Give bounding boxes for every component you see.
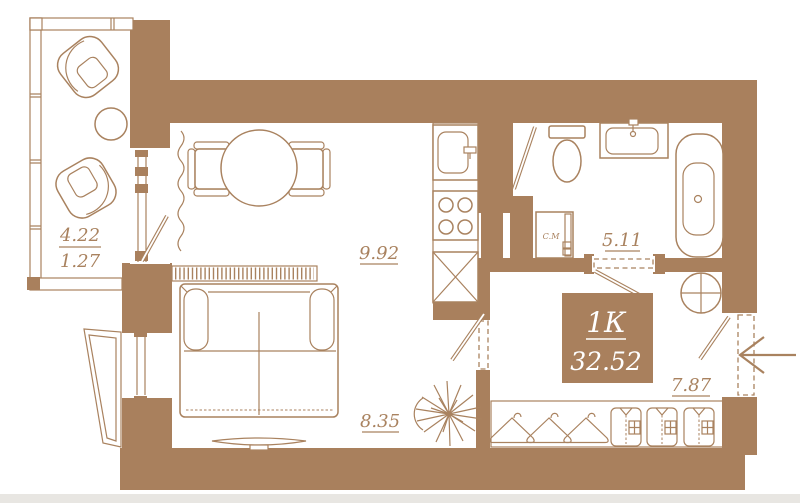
- wall-balcony-divider: [130, 20, 170, 150]
- kitchen-living-area-label: 9.92: [359, 243, 399, 264]
- balcony-rail-bottom: [30, 278, 122, 290]
- wall-hall-band-right: [655, 258, 722, 272]
- stove: [433, 191, 478, 240]
- armchair-bottom: [50, 152, 121, 223]
- bed-cushion-left: [184, 289, 208, 350]
- wardrobe: [490, 401, 727, 447]
- bed-cushion-right: [310, 289, 334, 350]
- bed: [180, 284, 338, 417]
- balcony-rail-top: [30, 18, 133, 30]
- washing-machine: С.М: [536, 212, 573, 258]
- floor-plan-drawing: 4.22 1.27: [0, 0, 800, 503]
- curtain-squiggle: [178, 131, 184, 251]
- balcony-rail-left: [30, 18, 41, 288]
- living-hall-door-opening: [476, 320, 490, 370]
- bathroom-area-label: 5.11: [602, 230, 642, 251]
- shirt-icon: [684, 408, 714, 446]
- armchair-top: [52, 31, 125, 104]
- balcony-rail-corner: [30, 18, 42, 30]
- wall-right-upper: [722, 80, 757, 313]
- sleeping-zone-area-label: 8.35: [360, 411, 400, 432]
- plant: [414, 381, 482, 446]
- balcony-area-reduced-label: 1.27: [60, 251, 101, 272]
- wall-top: [148, 80, 757, 123]
- balcony-rail-end-cap: [27, 277, 40, 290]
- wall-left-lower-block: [122, 398, 172, 452]
- unit-type-label: 1К: [586, 306, 627, 339]
- coffee-table: [95, 108, 127, 140]
- kitchen-units: [433, 123, 478, 303]
- left-window-frame: [137, 336, 145, 395]
- kitchen-sink: [433, 125, 478, 180]
- shirt-icon: [611, 408, 641, 446]
- dining-table: [221, 130, 297, 206]
- hallway: 1К 32.52 7.87: [490, 273, 727, 447]
- washing-machine-label: С.М: [543, 232, 561, 241]
- unit-info-box: 1К 32.52: [562, 293, 653, 383]
- wall-duct-left: [481, 213, 503, 262]
- ceiling-light-icon: [681, 273, 721, 313]
- shirt-icon: [647, 408, 677, 446]
- hallway-area-label: 7.87: [671, 375, 712, 396]
- wall-left-upper-block: [122, 263, 172, 333]
- hatched-band: [172, 266, 317, 281]
- page-edge-strip: [0, 494, 800, 503]
- wall-living-hall-lower: [476, 370, 490, 448]
- toilet: [549, 126, 585, 182]
- left-window-cap-top: [134, 331, 147, 337]
- washbasin: [600, 119, 668, 158]
- left-window-cap-bottom: [134, 396, 147, 402]
- bathtub: [676, 134, 723, 257]
- unit-total-area: 32.52: [570, 347, 642, 376]
- wall-connector: [478, 196, 533, 213]
- wall-hall-band-left: [478, 258, 592, 272]
- balcony: 4.22 1.27: [27, 18, 133, 290]
- kitchen-cabinet: [433, 252, 478, 302]
- wall-bottom: [120, 448, 745, 490]
- floor-plan-page: 4.22 1.27: [0, 0, 800, 503]
- balcony-area-label: 4.22: [59, 225, 100, 246]
- bathroom: С.М 5.11: [514, 119, 723, 258]
- wall-kitchen-bath-column: [478, 123, 513, 200]
- wall-duct-right: [510, 213, 533, 262]
